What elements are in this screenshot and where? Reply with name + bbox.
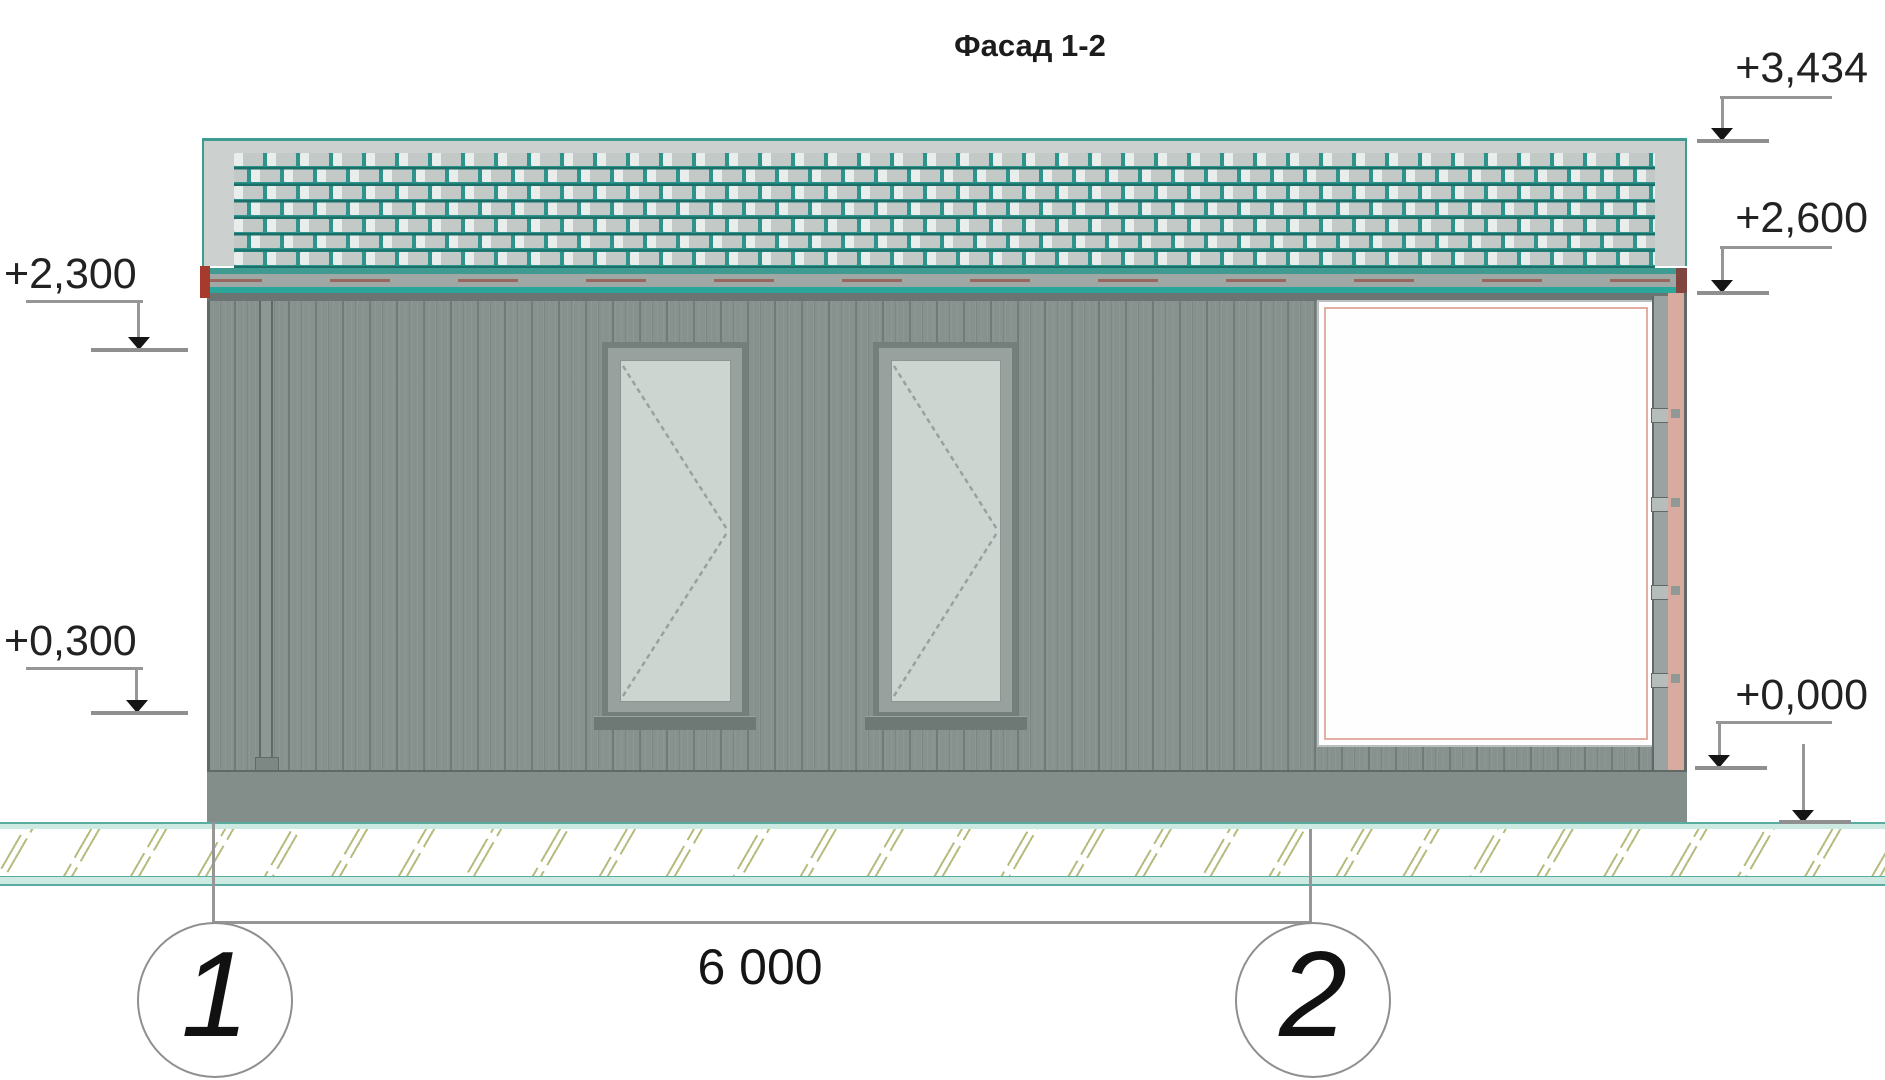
- elevation-level-line: [91, 348, 188, 352]
- roof-tile: [531, 153, 560, 166]
- roof-tile: [366, 219, 395, 232]
- roof-tile: [663, 186, 692, 199]
- roof-tile: [1043, 235, 1072, 248]
- roof-tile: [1554, 186, 1583, 199]
- roof-tile: [317, 202, 346, 215]
- roof-tile: [1538, 202, 1567, 215]
- roof-tile: [1257, 219, 1286, 232]
- roof-tile: [234, 169, 247, 182]
- roof-tile: [465, 153, 494, 166]
- roof-tile: [746, 202, 775, 215]
- roof-tile: [1109, 169, 1138, 182]
- roof-tile: [630, 252, 659, 265]
- roof-tile: [911, 202, 940, 215]
- roof-tile: [1455, 219, 1484, 232]
- roof-tile: [779, 202, 808, 215]
- roof-tile: [713, 202, 742, 215]
- roof-tile: [1373, 169, 1402, 182]
- roof-tile: [1422, 219, 1451, 232]
- roof-tile: [878, 202, 907, 215]
- elevation-leader: [1721, 96, 1724, 130]
- roof-tile: [399, 252, 428, 265]
- roof-tile: [1571, 235, 1600, 248]
- roof-tile: [828, 219, 857, 232]
- axis-circle-2: 2: [1235, 922, 1391, 1078]
- elevation-underline: [26, 667, 143, 670]
- roof-tile: [1472, 202, 1501, 215]
- roof-tile: [432, 186, 461, 199]
- roof-tile: [251, 202, 280, 215]
- roof-tile: [1010, 169, 1039, 182]
- roof-tile: [366, 186, 395, 199]
- roof-tile: [1521, 219, 1550, 232]
- elevation-underline: [1720, 246, 1832, 249]
- elevation-label: +0,300: [4, 617, 154, 666]
- roof-tile: [1653, 252, 1655, 265]
- roof-tile: [548, 202, 577, 215]
- roof-tile: [812, 169, 841, 182]
- roof-tile: [548, 169, 577, 182]
- elevation-leader: [137, 300, 140, 339]
- roof-tile: [1158, 219, 1187, 232]
- roof-tile: [927, 153, 956, 166]
- roof-tile: [762, 153, 791, 166]
- roof-tile: [993, 252, 1022, 265]
- roof-tile: [1422, 252, 1451, 265]
- roof-tile: [845, 169, 874, 182]
- roof-tile: [1323, 219, 1352, 232]
- roof-tile: [828, 186, 857, 199]
- roof-tile: [234, 252, 263, 265]
- facade-drawing: Фасад 1-2: [0, 0, 1885, 1080]
- roof-tile: [1637, 202, 1655, 215]
- roof-tile: [597, 219, 626, 232]
- roof-tile: [1356, 186, 1385, 199]
- roof-tile: [1587, 153, 1616, 166]
- roof-tile: [548, 235, 577, 248]
- roof-tile: [795, 219, 824, 232]
- roof-tile: [234, 235, 247, 248]
- roof-tile: [911, 235, 940, 248]
- roof-tile: [1406, 169, 1435, 182]
- gutter-band: [202, 274, 1687, 287]
- roof-tile: [564, 252, 593, 265]
- axis-1-label: 1: [181, 933, 249, 1055]
- roof-tile: [845, 235, 874, 248]
- roof-tile-row: [234, 169, 1655, 182]
- roof-tile: [960, 186, 989, 199]
- roof-tile: [1224, 252, 1253, 265]
- roof-tile: [1340, 202, 1369, 215]
- roof-tile-row: [234, 202, 1655, 215]
- roof-tile: [1472, 235, 1501, 248]
- window-2: [873, 342, 1018, 718]
- elevation-level-line: [1697, 139, 1769, 143]
- roof-tile: [1191, 219, 1220, 232]
- roof-tile: [927, 252, 956, 265]
- roof-tile: [581, 235, 610, 248]
- window-2-sill: [865, 716, 1027, 730]
- roof-tile: [960, 153, 989, 166]
- roof-tile: [1538, 169, 1567, 182]
- elevation-leader: [1721, 246, 1724, 282]
- roof-tile: [1142, 169, 1171, 182]
- plinth: [207, 770, 1687, 824]
- roof-tile: [1092, 252, 1121, 265]
- roof-tile: [234, 219, 263, 232]
- roof-tile: [416, 202, 445, 215]
- roof-tile: [383, 235, 412, 248]
- roof-tile: [1241, 235, 1270, 248]
- roof-tile: [680, 169, 709, 182]
- roof-tile: [861, 186, 890, 199]
- downspout: [259, 301, 273, 757]
- roof-tile: [663, 153, 692, 166]
- elevation-level-line: [1697, 291, 1769, 295]
- roof-tile: [713, 169, 742, 182]
- roof-tile: [1356, 252, 1385, 265]
- roof-tile: [498, 186, 527, 199]
- roof-tile: [498, 252, 527, 265]
- roof-tile: [1538, 235, 1567, 248]
- roof-tile: [1604, 202, 1633, 215]
- roof-tile: [1224, 186, 1253, 199]
- axis-2-label: 2: [1279, 933, 1347, 1055]
- roof-tile: [696, 252, 725, 265]
- elevation-level-line: [1695, 766, 1767, 770]
- roof-tile: [1257, 252, 1286, 265]
- fascia-red-accent-left: [200, 266, 210, 298]
- roof-tile: [729, 153, 758, 166]
- roof-tile: [944, 235, 973, 248]
- roof-tile: [680, 202, 709, 215]
- roof-tile-row: [234, 219, 1655, 232]
- roof-tile: [1059, 186, 1088, 199]
- roof-tile: [1076, 202, 1105, 215]
- elevation-label: +2,600: [1708, 194, 1868, 243]
- roof-tile: [581, 169, 610, 182]
- roof-tile: [878, 235, 907, 248]
- roof-tile: [828, 252, 857, 265]
- roof-tile: [1175, 235, 1204, 248]
- roof-tile: [1620, 219, 1649, 232]
- roof-tile: [1059, 219, 1088, 232]
- roof-tile: [498, 219, 527, 232]
- roof-tile: [1472, 169, 1501, 182]
- roof-tile: [465, 219, 494, 232]
- roof-tile: [267, 153, 296, 166]
- roof-tile: [795, 153, 824, 166]
- roof-tile: [251, 235, 280, 248]
- elevation-underline: [1720, 96, 1832, 99]
- roof-tile-row: [234, 252, 1655, 265]
- roof-tile: [1224, 153, 1253, 166]
- gate: [1317, 300, 1655, 747]
- roof-tile: [1488, 252, 1517, 265]
- roof-tile: [1340, 169, 1369, 182]
- roof-tile: [911, 169, 940, 182]
- roof-tile: [680, 235, 709, 248]
- roof-tile: [828, 153, 857, 166]
- roof-tile: [1043, 202, 1072, 215]
- elevation-label: +3,434: [1708, 44, 1868, 93]
- roof-tile: [1158, 153, 1187, 166]
- roof-tile: [894, 252, 923, 265]
- roof-tile: [1521, 252, 1550, 265]
- roof-tile: [300, 153, 329, 166]
- roof-tile: [713, 235, 742, 248]
- roof-tile: [1043, 169, 1072, 182]
- roof-tile: [1406, 235, 1435, 248]
- roof-tile: [1274, 202, 1303, 215]
- roof-tile: [1076, 235, 1105, 248]
- roof-tile: [977, 169, 1006, 182]
- corner-trim-strip: [1668, 293, 1684, 770]
- roof-tile: [1455, 153, 1484, 166]
- roof-tile: [630, 219, 659, 232]
- roof-tile: [647, 202, 676, 215]
- roof-tile: [927, 186, 956, 199]
- roof-tile: [432, 219, 461, 232]
- roof-tile: [1389, 186, 1418, 199]
- roof-tile: [284, 169, 313, 182]
- roof-tile: [1505, 169, 1534, 182]
- roof-tile: [1290, 252, 1319, 265]
- roof-tile: [1488, 219, 1517, 232]
- roof-tile: [1125, 186, 1154, 199]
- roof-tile: [1340, 235, 1369, 248]
- roof-tile: [1010, 202, 1039, 215]
- roof-tile: [960, 252, 989, 265]
- axis-2-line: [1309, 829, 1312, 924]
- roof-tile: [1356, 219, 1385, 232]
- roof-tile: [1125, 252, 1154, 265]
- roof-tile: [696, 219, 725, 232]
- elevation-leader: [135, 667, 138, 702]
- roof-tile: [1323, 252, 1352, 265]
- roof-tile: [1092, 186, 1121, 199]
- roof-tile: [1653, 186, 1655, 199]
- roof-tile: [1620, 186, 1649, 199]
- roof-tile: [944, 202, 973, 215]
- roof-tile: [449, 202, 478, 215]
- roof-tile: [1587, 186, 1616, 199]
- window-1-glass: [620, 360, 731, 702]
- roof-tile: [1208, 169, 1237, 182]
- roof-tile: [482, 169, 511, 182]
- roof-tile: [366, 153, 395, 166]
- roof-tile: [762, 219, 791, 232]
- roof-tile: [1026, 186, 1055, 199]
- roof-tile: [1191, 153, 1220, 166]
- roof-tile: [1241, 169, 1270, 182]
- roof-tile: [746, 169, 775, 182]
- roof-tile: [1455, 186, 1484, 199]
- roof-tile: [1571, 202, 1600, 215]
- roof-tile: [1637, 169, 1655, 182]
- dimension-label: 6 000: [650, 938, 870, 996]
- roof-tile: [1307, 202, 1336, 215]
- elevation-leader: [1718, 721, 1721, 757]
- drawing-title: Фасад 1-2: [840, 28, 1220, 64]
- roof-tile: [1191, 186, 1220, 199]
- roof-tile: [1109, 235, 1138, 248]
- roof-tile: [482, 202, 511, 215]
- elevation-level-line: [91, 711, 188, 715]
- roof-tile: [597, 252, 626, 265]
- roof-tile-row: [234, 186, 1655, 199]
- roof-tile: [1406, 202, 1435, 215]
- roof-tile: [1323, 186, 1352, 199]
- roof-tile: [1092, 153, 1121, 166]
- roof-tile: [399, 153, 428, 166]
- elevation-leader: [1802, 744, 1805, 812]
- roof-tile: [1521, 153, 1550, 166]
- roof-tile: [1422, 153, 1451, 166]
- roof-tile: [1389, 219, 1418, 232]
- roof-tile: [1274, 169, 1303, 182]
- window-1: [602, 342, 748, 718]
- roof-tiles: [234, 153, 1655, 268]
- roof-tile: [1505, 202, 1534, 215]
- roof-tile: [449, 169, 478, 182]
- elevation-label: +2,300: [4, 250, 154, 299]
- roof-tile: [1307, 169, 1336, 182]
- roof-tile: [1637, 235, 1655, 248]
- roof-tile: [482, 235, 511, 248]
- roof-tile: [1125, 219, 1154, 232]
- roof: [202, 138, 1687, 266]
- roof-tile: [795, 252, 824, 265]
- roof-tile-row: [234, 235, 1655, 248]
- roof-tile: [284, 235, 313, 248]
- roof-tile: [416, 235, 445, 248]
- roof-tile: [1158, 186, 1187, 199]
- elevation-underline: [26, 300, 143, 303]
- roof-tile: [1554, 219, 1583, 232]
- axis-circle-1: 1: [137, 922, 293, 1078]
- roof-tile: [1241, 202, 1270, 215]
- roof-tile: [333, 186, 362, 199]
- roof-tile: [1554, 252, 1583, 265]
- roof-tile: [564, 219, 593, 232]
- roof-tile: [564, 186, 593, 199]
- roof-tile: [1653, 153, 1655, 166]
- roof-tile: [234, 202, 247, 215]
- roof-tile: [432, 252, 461, 265]
- roof-tile: [1158, 252, 1187, 265]
- roof-tile: [1109, 202, 1138, 215]
- hinge-pin: [1671, 674, 1680, 683]
- roof-tile: [1076, 169, 1105, 182]
- roof-tile: [812, 202, 841, 215]
- ground-line-bottom: [0, 876, 1885, 886]
- roof-tile: [812, 235, 841, 248]
- roof-tile: [944, 169, 973, 182]
- roof-tile: [614, 169, 643, 182]
- roof-tile: [1125, 153, 1154, 166]
- roof-tile: [647, 235, 676, 248]
- roof-tile: [1554, 153, 1583, 166]
- roof-tile: [1439, 169, 1468, 182]
- roof-tile: [977, 202, 1006, 215]
- roof-tile: [1026, 252, 1055, 265]
- roof-tile: [531, 252, 560, 265]
- roof-tile: [1488, 153, 1517, 166]
- roof-tile: [779, 169, 808, 182]
- roof-tile: [1142, 202, 1171, 215]
- roof-tile: [614, 202, 643, 215]
- roof-tile: [861, 252, 890, 265]
- roof-tile: [515, 235, 544, 248]
- roof-tile: [267, 252, 296, 265]
- roof-tile: [894, 153, 923, 166]
- roof-tile: [729, 252, 758, 265]
- roof-tile: [1653, 219, 1655, 232]
- roof-tile: [465, 186, 494, 199]
- roof-tile: [1389, 153, 1418, 166]
- roof-tile: [696, 153, 725, 166]
- roof-tile: [350, 235, 379, 248]
- roof-tile: [251, 169, 280, 182]
- wall-left-edge: [207, 301, 210, 770]
- roof-tile: [597, 153, 626, 166]
- roof-tile: [515, 169, 544, 182]
- roof-tile-row: [234, 153, 1655, 166]
- roof-tile: [1439, 202, 1468, 215]
- roof-tile: [333, 252, 362, 265]
- roof-tile: [300, 219, 329, 232]
- roof-tile: [267, 186, 296, 199]
- roof-tile: [663, 219, 692, 232]
- roof-tile: [861, 219, 890, 232]
- elevation-underline: [1716, 721, 1832, 724]
- roof-tile: [317, 235, 346, 248]
- hinge-pin: [1671, 586, 1680, 595]
- roof-tile: [366, 252, 395, 265]
- roof-tile: [762, 252, 791, 265]
- roof-tile: [1290, 219, 1319, 232]
- roof-tile: [1208, 235, 1237, 248]
- roof-tile: [350, 202, 379, 215]
- roof-tile: [927, 219, 956, 232]
- roof-tile: [696, 186, 725, 199]
- elevation-label: +0,000: [1708, 671, 1868, 720]
- roof-tile: [531, 186, 560, 199]
- roof-tile: [597, 186, 626, 199]
- roof-tile: [1604, 169, 1633, 182]
- roof-tile: [300, 186, 329, 199]
- roof-tile: [1505, 235, 1534, 248]
- roof-tile: [647, 169, 676, 182]
- roof-tile: [1455, 252, 1484, 265]
- roof-tile: [1274, 235, 1303, 248]
- roof-tile: [960, 219, 989, 232]
- roof-tile: [729, 219, 758, 232]
- roof-tile: [350, 169, 379, 182]
- roof-tile: [1059, 252, 1088, 265]
- ground-hatch: [0, 829, 1885, 876]
- roof-tile: [1059, 153, 1088, 166]
- roof-tile: [878, 169, 907, 182]
- roof-tile: [234, 186, 263, 199]
- roof-tile: [861, 153, 890, 166]
- roof-tile: [1488, 186, 1517, 199]
- roof-tile: [795, 186, 824, 199]
- roof-tile: [977, 235, 1006, 248]
- roof-tile: [1356, 153, 1385, 166]
- roof-tile: [1142, 235, 1171, 248]
